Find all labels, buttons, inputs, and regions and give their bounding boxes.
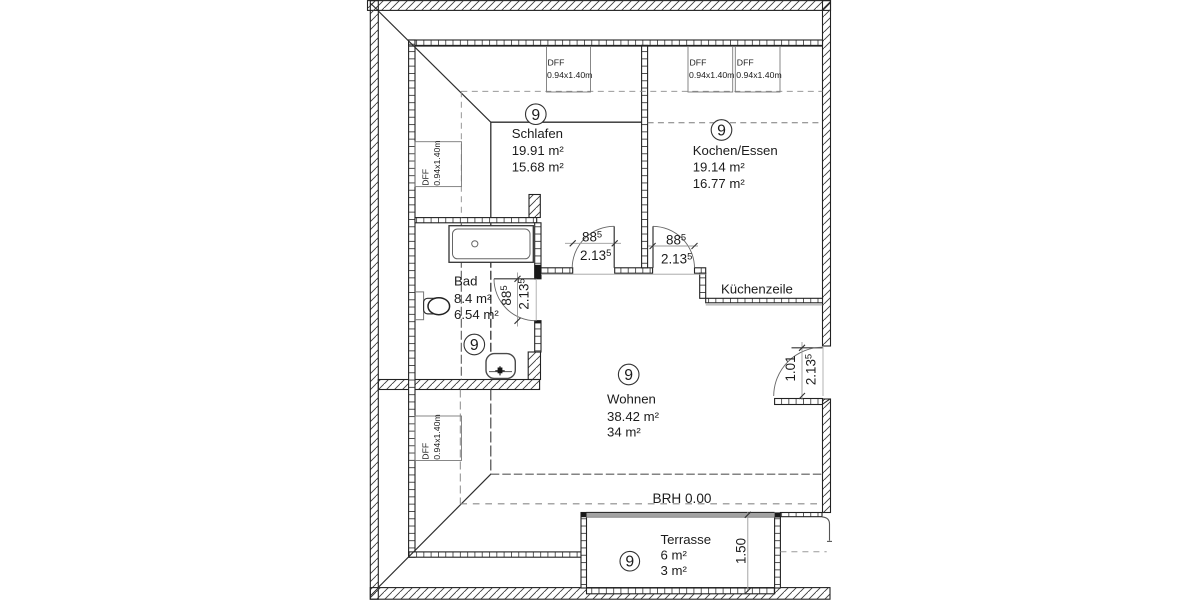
- svg-text:15.68 m²: 15.68 m²: [512, 160, 565, 175]
- svg-text:0.94x1.40m: 0.94x1.40m: [689, 70, 734, 80]
- svg-text:Schlafen: Schlafen: [512, 126, 563, 141]
- svg-text:34 m²: 34 m²: [607, 425, 641, 440]
- svg-text:0.94x1.40m: 0.94x1.40m: [432, 414, 442, 459]
- svg-text:6.54 m²: 6.54 m²: [454, 307, 499, 322]
- svg-text:DFF: DFF: [690, 58, 707, 68]
- svg-text:9: 9: [625, 554, 634, 571]
- svg-text:19.91 m²: 19.91 m²: [512, 143, 565, 158]
- svg-text:Kochen/Essen: Kochen/Essen: [693, 143, 778, 158]
- svg-text:38.42 m²: 38.42 m²: [607, 409, 660, 424]
- svg-text:DFF: DFF: [421, 169, 431, 186]
- svg-text:DFF: DFF: [421, 443, 431, 460]
- svg-text:6 m²: 6 m²: [661, 547, 688, 562]
- svg-text:9: 9: [624, 367, 633, 384]
- svg-text:0.94x1.40m: 0.94x1.40m: [432, 140, 442, 185]
- svg-text:16.77 m²: 16.77 m²: [693, 176, 746, 191]
- svg-text:8.4 m²: 8.4 m²: [454, 291, 492, 306]
- svg-text:1.01: 1.01: [783, 355, 798, 381]
- svg-text:Küchenzeile: Küchenzeile: [721, 282, 793, 297]
- svg-text:BRH 0.00: BRH 0.00: [653, 491, 712, 506]
- svg-text:0.94x1.40m: 0.94x1.40m: [736, 70, 781, 80]
- svg-text:DFF: DFF: [548, 58, 565, 68]
- svg-text:1.50: 1.50: [734, 538, 749, 564]
- svg-text:Bad: Bad: [454, 274, 477, 289]
- svg-text:0.94x1.40m: 0.94x1.40m: [547, 70, 592, 80]
- svg-text:Wohnen: Wohnen: [607, 392, 656, 407]
- svg-text:DFF: DFF: [737, 58, 754, 68]
- svg-text:19.14 m²: 19.14 m²: [693, 159, 746, 174]
- svg-text:Terrasse: Terrasse: [661, 532, 712, 547]
- svg-text:9: 9: [531, 107, 540, 124]
- svg-text:3 m²: 3 m²: [661, 563, 688, 578]
- svg-text:9: 9: [470, 337, 479, 354]
- svg-text:9: 9: [717, 123, 726, 140]
